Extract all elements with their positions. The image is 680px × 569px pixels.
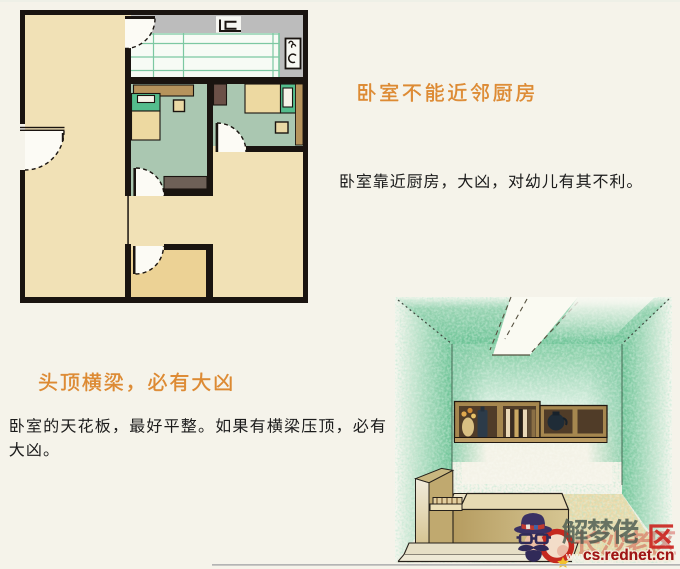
svg-text:cs.rednet.cn: cs.rednet.cn <box>583 547 674 564</box>
